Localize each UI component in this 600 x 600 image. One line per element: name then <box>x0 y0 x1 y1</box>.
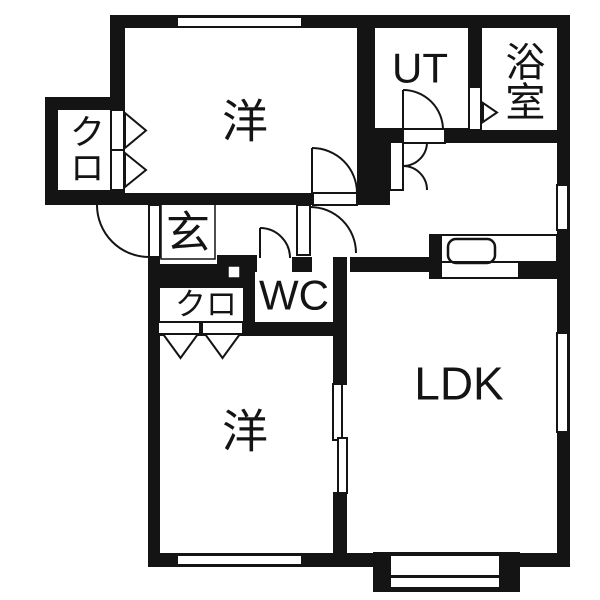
bedroom1-door-arc <box>312 148 357 193</box>
kitchen-counter-end <box>430 235 442 278</box>
entrance-door-opening <box>149 205 160 257</box>
window-right-lower <box>557 333 568 432</box>
closet2-door-panel-2 <box>202 322 243 334</box>
toilet-door-arc <box>260 228 290 258</box>
wall-closet1-bottom <box>45 190 125 205</box>
closet2-folding-door-triangle-2 <box>205 334 240 358</box>
room-label-closet-1: クロ <box>66 113 103 185</box>
kitchen-sink <box>448 239 495 263</box>
room-label-ldk: LDK <box>414 361 503 408</box>
closet1-folding-door-triangle-1 <box>125 113 146 148</box>
wall-hall-bottom-c <box>350 257 442 272</box>
washroom-folding-door-leaf <box>390 142 403 190</box>
floor-plan: 洋 UT 浴室 クロ 玄 クロ WC LDK 洋 <box>0 0 600 600</box>
bathroom-folding-door-triangle <box>483 103 497 122</box>
window-right-upper <box>557 185 568 230</box>
wall-hall-bottom-b <box>292 257 312 272</box>
sliding-door-panel-1 <box>333 384 342 440</box>
wall-hall-pillar <box>357 143 390 205</box>
room-label-bedroom-2: 洋 <box>222 409 268 456</box>
terrace-step <box>390 577 500 588</box>
window-top <box>177 17 302 27</box>
room-label-bathroom: 浴室 <box>501 41 542 121</box>
terrace-sliding-door <box>390 555 500 576</box>
wall-bedroom2-left <box>148 205 160 567</box>
utility-door-opening <box>403 129 445 143</box>
sliding-door-panel-2 <box>338 438 347 493</box>
room-label-utility: UT <box>392 48 448 91</box>
utility-door-arc <box>403 90 443 130</box>
wall-bedroom2-right-upper <box>333 257 347 385</box>
bathroom-door-panel <box>469 87 481 130</box>
wall-utility-left <box>357 15 375 143</box>
room-label-closet-2: クロ <box>175 289 237 321</box>
hall-ldk-door-arc <box>310 207 356 253</box>
room-label-toilet: WC <box>259 275 329 318</box>
wall-niche <box>228 266 240 278</box>
room-label-bedroom-1: 洋 <box>222 99 268 146</box>
closet1-door-panel-1 <box>111 110 124 150</box>
wall-right <box>557 15 570 567</box>
entrance-door-arc <box>97 205 149 257</box>
room-label-entrance: 玄 <box>166 212 210 257</box>
wall-closet1-left <box>45 97 58 200</box>
closet2-folding-door-triangle-1 <box>163 334 198 358</box>
kitchen-counter-dark-section <box>518 262 557 278</box>
hall-ldk-door-leaf <box>297 205 310 255</box>
bedroom1-door-opening <box>313 193 357 205</box>
washroom-folding-door-arc-1 <box>403 142 427 166</box>
closet1-folding-door-triangle-2 <box>125 153 146 187</box>
wall-bathroom-bottom <box>440 130 570 143</box>
closet2-door-panel-1 <box>158 322 200 334</box>
window-bottom <box>177 555 302 565</box>
washroom-folding-door-arc-2 <box>403 166 427 190</box>
closet1-door-panel-2 <box>111 150 124 190</box>
